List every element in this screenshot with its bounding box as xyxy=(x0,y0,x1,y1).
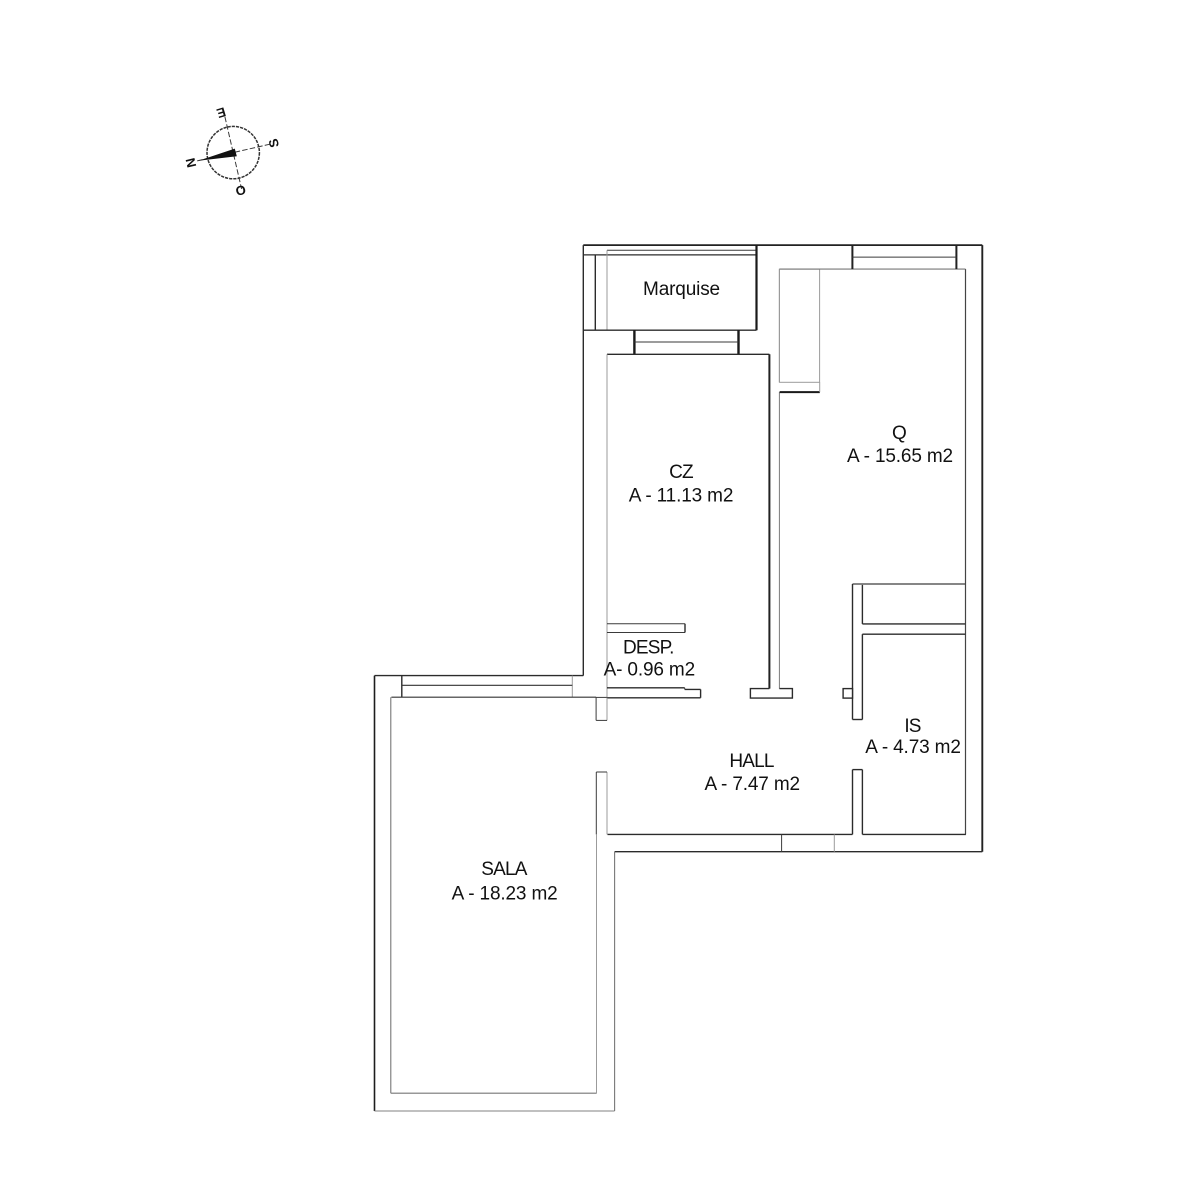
svg-text:A - 15.65 m2: A - 15.65 m2 xyxy=(847,446,953,467)
svg-text:S: S xyxy=(265,137,282,149)
svg-text:A - 18.23 m2: A - 18.23 m2 xyxy=(452,884,558,905)
svg-text:A - 11.13 m2: A - 11.13 m2 xyxy=(629,486,734,507)
svg-text:Marquise: Marquise xyxy=(643,279,720,300)
svg-text:E: E xyxy=(215,104,228,121)
svg-text:A - 4.73 m2: A - 4.73 m2 xyxy=(865,737,961,758)
svg-text:CZ: CZ xyxy=(669,462,694,483)
svg-text:Q: Q xyxy=(892,423,906,444)
svg-text:DESP.: DESP. xyxy=(623,638,674,659)
svg-text:A - 7.47 m2: A - 7.47 m2 xyxy=(704,774,800,795)
svg-text:A- 0.96 m2: A- 0.96 m2 xyxy=(604,660,695,681)
svg-text:SALA: SALA xyxy=(481,859,528,880)
svg-text:O: O xyxy=(234,182,247,199)
svg-text:N: N xyxy=(183,156,200,169)
svg-text:HALL: HALL xyxy=(729,751,774,772)
svg-text:IS: IS xyxy=(904,716,920,737)
